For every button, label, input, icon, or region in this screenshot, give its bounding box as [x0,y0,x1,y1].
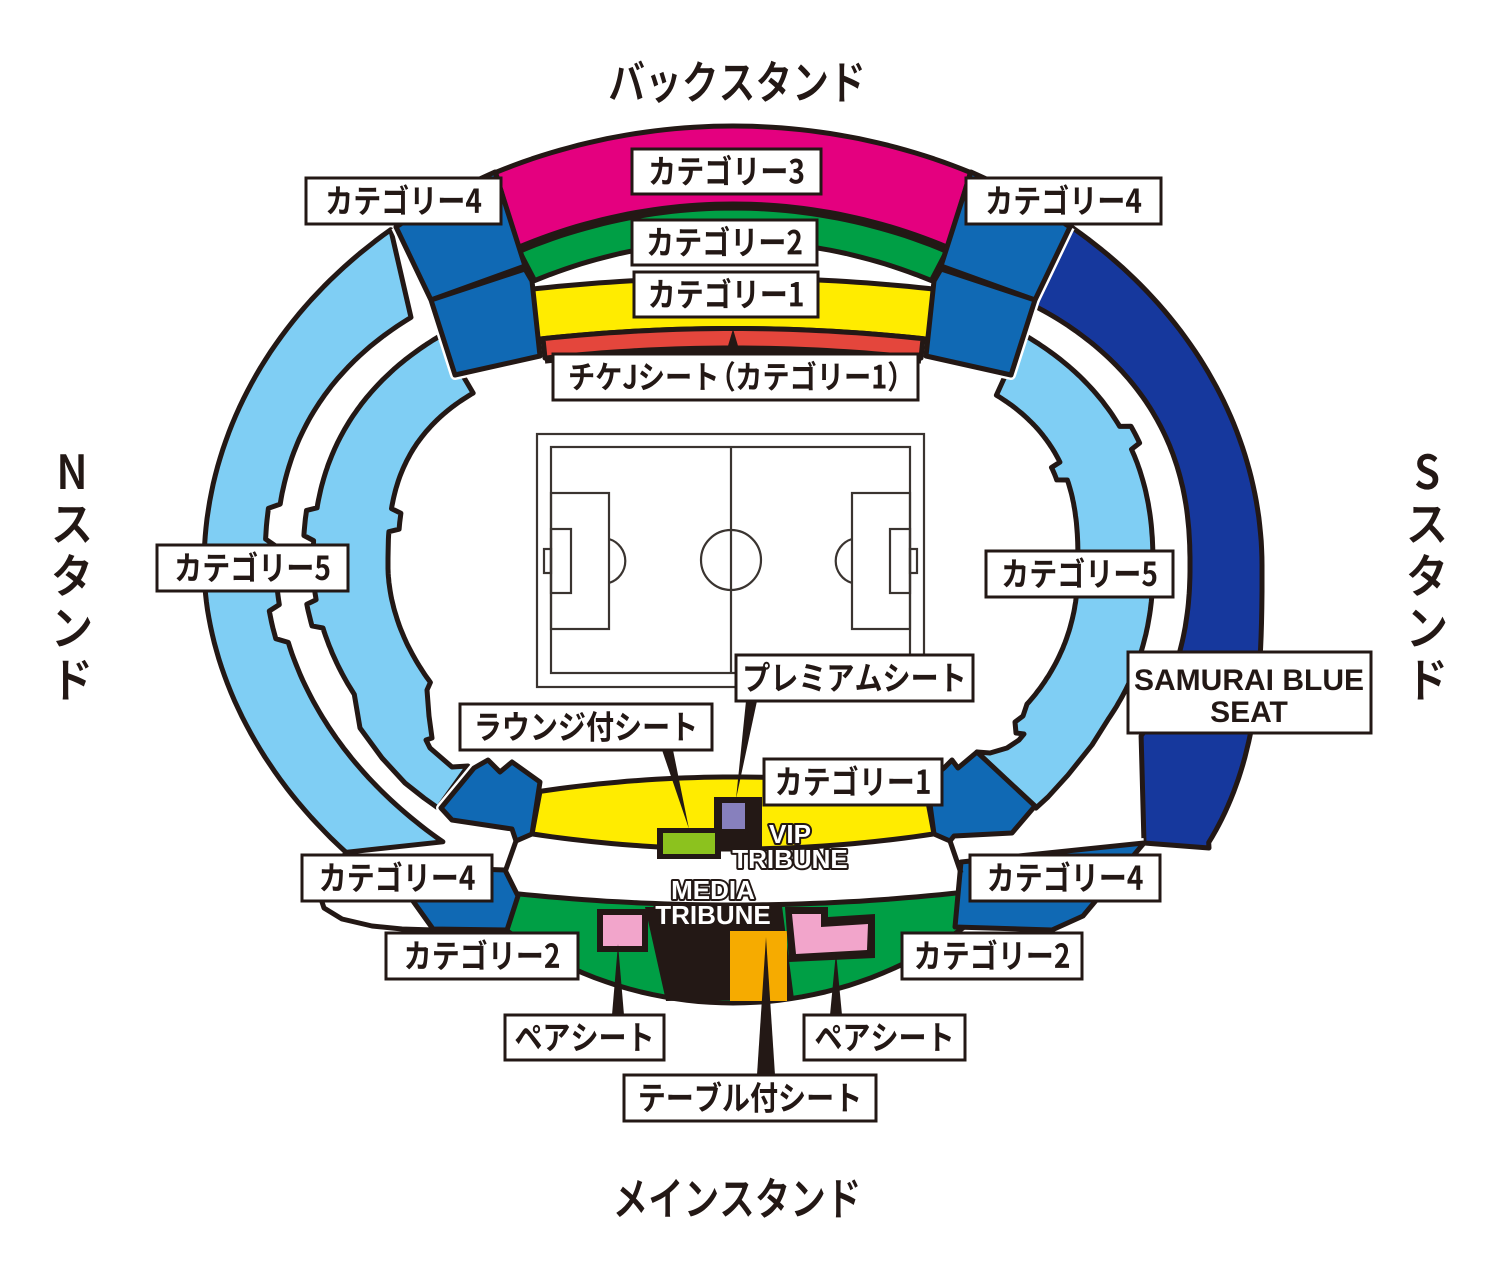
svg-text:TRIBUNE: TRIBUNE [732,844,848,874]
svg-text:TRIBUNE: TRIBUNE [655,900,771,930]
svg-text:SEAT: SEAT [1210,696,1288,729]
svg-text:SAMURAI BLUE: SAMURAI BLUE [1134,664,1364,697]
